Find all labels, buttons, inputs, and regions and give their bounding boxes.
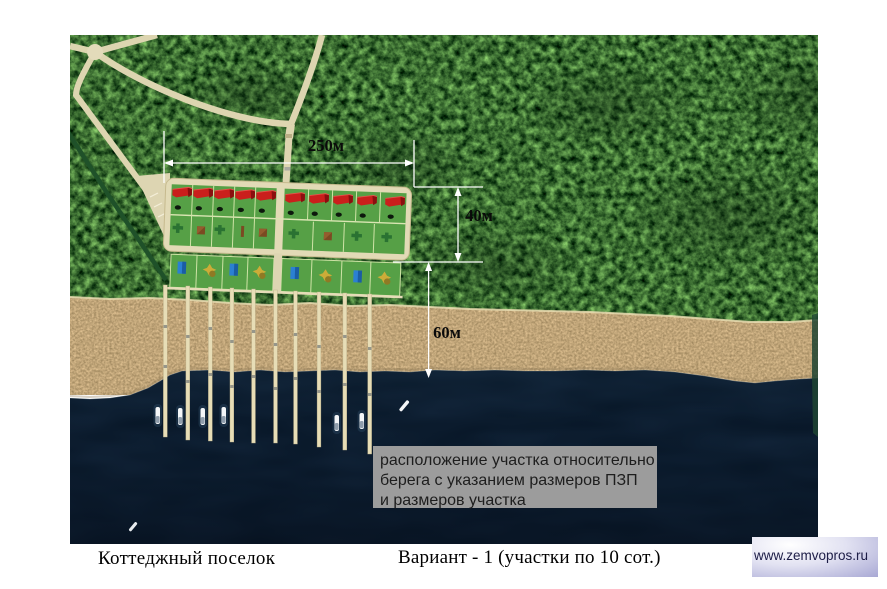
svg-text:250м: 250м [308, 136, 344, 155]
svg-text:40м: 40м [465, 206, 493, 225]
svg-text:60м: 60м [433, 323, 461, 342]
